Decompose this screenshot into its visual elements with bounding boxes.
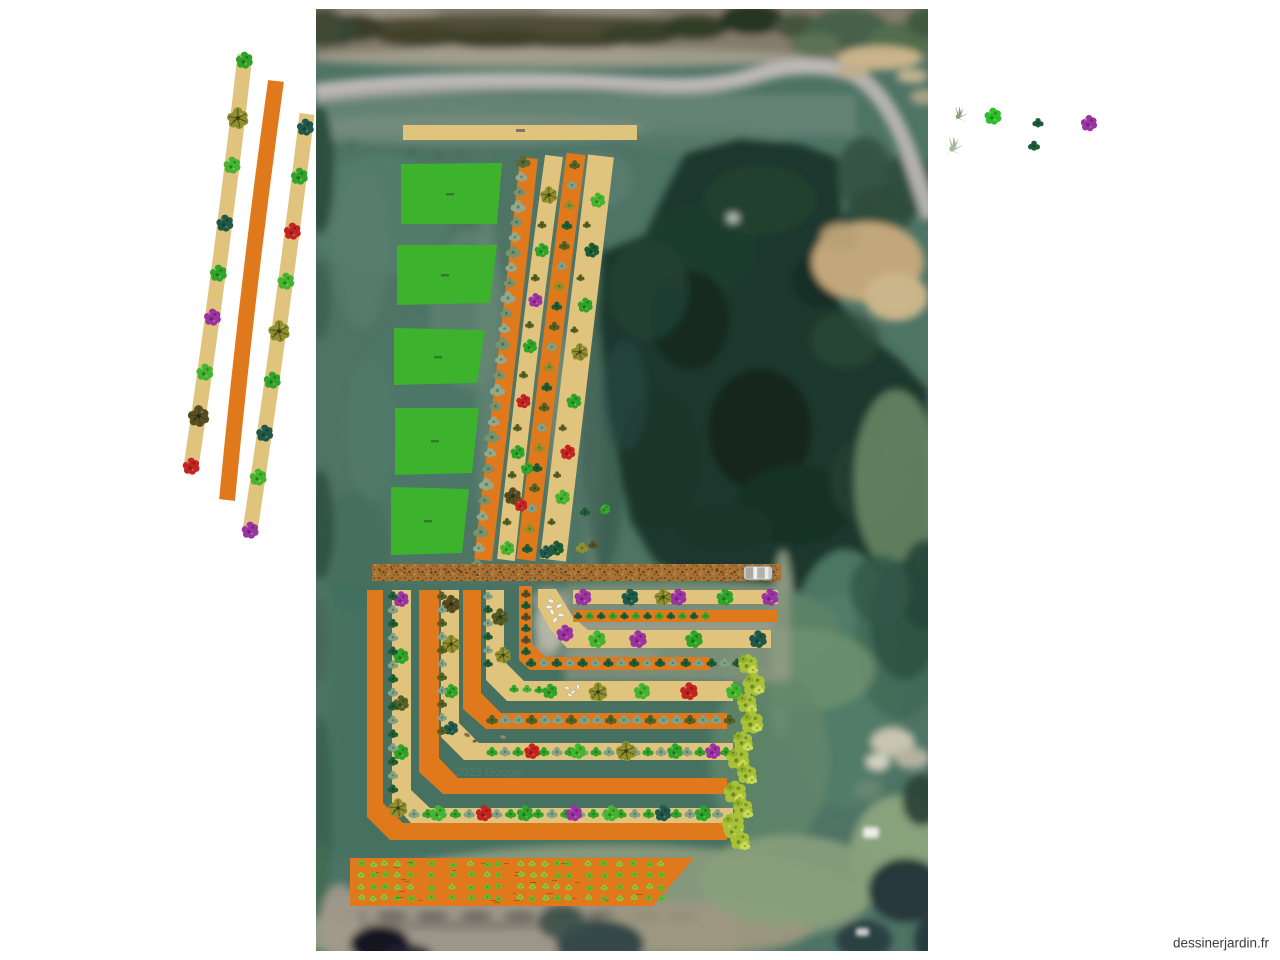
svg-text:2023 Google: 2023 Google	[455, 765, 524, 779]
svg-text:dessinerjardin.fr: dessinerjardin.fr	[1173, 936, 1270, 951]
